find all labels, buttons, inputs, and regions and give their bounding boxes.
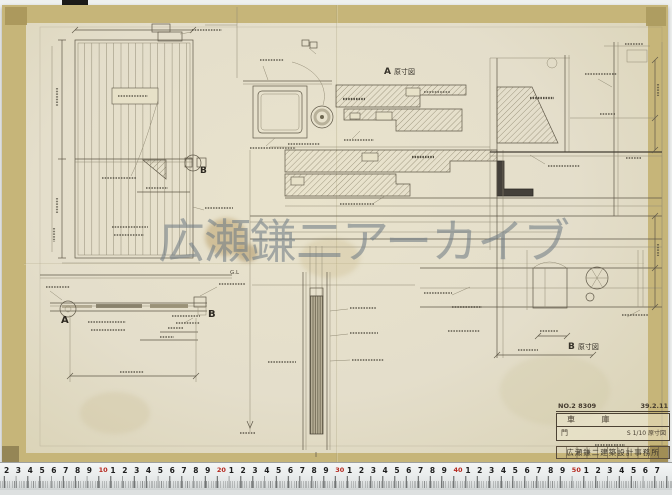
ruler-digit: 3: [16, 466, 21, 475]
ruler-digit: 2: [122, 466, 127, 475]
ruler-digit: 6: [643, 466, 648, 475]
elevation-detail-mark-b: B: [200, 166, 207, 176]
ruler-decade-mark: 30: [335, 466, 344, 474]
ruler-digit: 8: [430, 466, 435, 475]
ruler-digit: 6: [406, 466, 411, 475]
office-name: 広瀬鎌二建築設計事務所: [556, 446, 670, 459]
ruler-digit: 9: [323, 466, 328, 475]
ruler-digit: 4: [501, 466, 506, 475]
ruler-digit: 7: [418, 466, 423, 475]
ruler-digit: 1: [229, 466, 234, 475]
ruler-digit: 7: [536, 466, 541, 475]
title-block-table: 車 庫 門 S 1/10 原寸図: [556, 413, 670, 441]
ruler-digit: 8: [312, 466, 317, 475]
ruler-digit: 7: [655, 466, 660, 475]
ruler-digit: 2: [359, 466, 364, 475]
sheet-title: 門: [557, 427, 568, 440]
ruler-digit: 9: [87, 466, 92, 475]
ruler-digit: 3: [252, 466, 257, 475]
ruler-digit: 1: [347, 466, 352, 475]
ruler-decade-mark: 50: [572, 466, 581, 474]
ruler-digit: 5: [39, 466, 44, 475]
ruler-digit: 4: [619, 466, 624, 475]
ruler-decade-mark: 10: [99, 466, 108, 474]
ruler-digit: 5: [158, 466, 163, 475]
ruler-digit: 3: [607, 466, 612, 475]
drawing-date: 39.2.11: [640, 402, 668, 410]
ruler-digit: 8: [548, 466, 553, 475]
ruler-digit: 3: [134, 466, 139, 475]
title-block-note: [595, 444, 625, 447]
drawing-scale: S 1/10 原寸図: [627, 427, 669, 440]
ruler-digit: 6: [524, 466, 529, 475]
ruler-digit: 4: [28, 466, 33, 475]
ruler-digit: 3: [489, 466, 494, 475]
ruler-digit: 3: [371, 466, 376, 475]
title-block-header: NO.2 8309 39.2.11: [556, 402, 670, 412]
ruler-digit: 6: [170, 466, 175, 475]
ruler-decade-mark: 20: [217, 466, 226, 474]
ruler-digit: 5: [394, 466, 399, 475]
ruler-digit: 4: [264, 466, 269, 475]
ruler-digit: 4: [146, 466, 151, 475]
ruler-digit: 5: [513, 466, 518, 475]
ruler-digit: 1: [584, 466, 589, 475]
detail-b-letter: B: [568, 342, 575, 352]
title-block: NO.2 8309 39.2.11 車 庫 門 S 1/10 原寸図 広瀬鎌二建…: [556, 402, 670, 459]
post-vertical-section: [268, 246, 384, 457]
section-mark-b: B: [208, 309, 216, 320]
drawing-number: NO.2 8309: [558, 402, 596, 410]
wall-section: [490, 42, 662, 358]
ruler-digit: 2: [477, 466, 482, 475]
ruler-digit: 9: [442, 466, 447, 475]
ruler-digit: 1: [465, 466, 470, 475]
ruler-digit: 2: [595, 466, 600, 475]
plan-strip: [40, 275, 245, 382]
ruler-decade-mark: 40: [454, 466, 463, 474]
title-block-row2: 門 S 1/10 原寸図: [557, 427, 669, 440]
archive-watermark: 広瀬鎌二アーカイブ: [158, 219, 569, 266]
ruler-digit: 1: [110, 466, 115, 475]
ruler-digit: 2: [4, 466, 9, 475]
ruler-digit: 5: [631, 466, 636, 475]
detail-b-label: B原寸図: [568, 334, 599, 353]
detail-a-sections: [270, 85, 533, 204]
ruler-digit: 7: [63, 466, 68, 475]
ruler-mm-ticks: [0, 481, 672, 488]
ground-line-label: G.L: [230, 270, 239, 276]
ruler-digit: 6: [51, 466, 56, 475]
ruler-digit: 6: [288, 466, 293, 475]
section-mark-a: A: [61, 315, 69, 326]
ruler-digit: 8: [75, 466, 80, 475]
scanned-drawing-photo: 広瀬鎌二アーカイブ A原寸図 B原寸図 A B B G.L NO.2 8309 …: [0, 0, 672, 495]
project-name: 車 庫: [557, 414, 669, 427]
detail-a-label: A原寸図: [384, 59, 415, 78]
ruler-digit: 5: [276, 466, 281, 475]
detail-a-letter: A: [384, 67, 391, 77]
ruler-digit: 9: [205, 466, 210, 475]
ruler-digit: 7: [181, 466, 186, 475]
ruler-digit: 8: [193, 466, 198, 475]
ruler-digit: 7: [300, 466, 305, 475]
ruler-digit: 4: [383, 466, 388, 475]
ruler-digit: 2: [241, 466, 246, 475]
ruler-digit: 9: [560, 466, 565, 475]
